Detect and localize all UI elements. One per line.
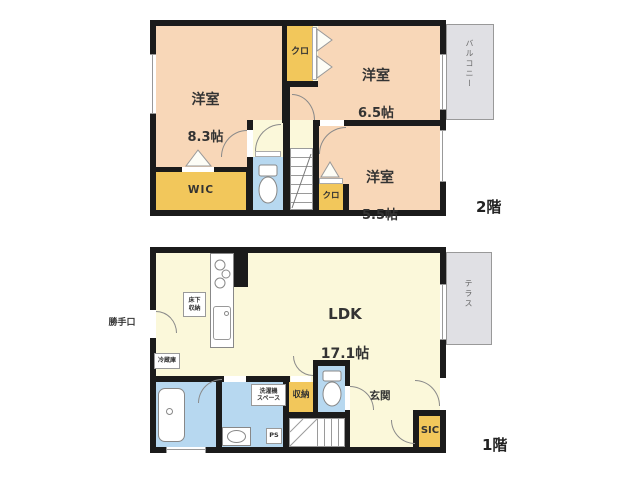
room-6_5-label: 洋室 6.5帖 xyxy=(318,46,434,143)
ldk-label: LDK 17.1帖 xyxy=(290,284,400,384)
storage-label: 収納 xyxy=(288,390,314,401)
wall xyxy=(283,123,290,216)
window xyxy=(440,284,446,340)
sic-label: SIC xyxy=(417,424,443,437)
closet-top-label: クロ xyxy=(286,47,314,59)
laundry-space-label: 洗濯機 スペース xyxy=(251,384,286,406)
underfloor-storage-label: 床下 収納 xyxy=(183,292,206,317)
floorplan: バルコニー xyxy=(0,0,640,480)
stove-icon xyxy=(212,257,232,291)
bathtub-drain-icon xyxy=(166,408,173,415)
wall xyxy=(246,167,253,210)
terrace-area: テラス xyxy=(446,252,492,345)
wall xyxy=(282,87,290,123)
refrigerator-label: 冷蔵庫 xyxy=(154,353,180,369)
window xyxy=(440,54,446,110)
room-size: 8.3帖 xyxy=(158,130,253,147)
wic-label: WIC xyxy=(156,184,246,198)
room-size: 5.5帖 xyxy=(324,208,436,225)
room-name: 洋室 xyxy=(324,169,436,187)
window xyxy=(440,130,446,182)
terrace-label: テラス xyxy=(463,279,474,309)
room-name: 洋室 xyxy=(318,67,434,85)
window xyxy=(166,447,206,453)
room-name: LDK xyxy=(290,305,400,325)
room-name: 洋室 xyxy=(158,91,253,109)
stairs-2f-run-line xyxy=(290,148,313,210)
stairs-1f-treads xyxy=(317,418,345,447)
toilet-icon xyxy=(257,164,279,206)
wic-opening xyxy=(182,167,214,172)
room-size: 6.5帖 xyxy=(318,106,434,123)
wall xyxy=(234,253,248,287)
balcony-label: バルコニー xyxy=(464,39,475,89)
door-opening xyxy=(224,376,246,382)
floor1-label: 1階 xyxy=(482,434,507,455)
entrance-label: 玄関 xyxy=(352,390,408,404)
bathtub xyxy=(158,388,185,442)
entrance-door-opening xyxy=(440,378,446,410)
washbasin-bowl-icon xyxy=(227,430,246,443)
toilet2f-door xyxy=(255,151,281,157)
back-door-label: 勝手口 xyxy=(100,318,144,330)
stairs-1f-winder-lines xyxy=(289,418,318,447)
room-size: 17.1帖 xyxy=(290,345,400,363)
ps-label: PS xyxy=(266,428,282,444)
window xyxy=(150,54,156,114)
faucet-icon xyxy=(224,311,229,316)
floor2-label: 2階 xyxy=(476,196,501,217)
closet-bottom-label: クロ xyxy=(318,191,344,202)
room-8_3-label: 洋室 8.3帖 xyxy=(158,70,253,167)
balcony-area: バルコニー xyxy=(446,24,494,120)
